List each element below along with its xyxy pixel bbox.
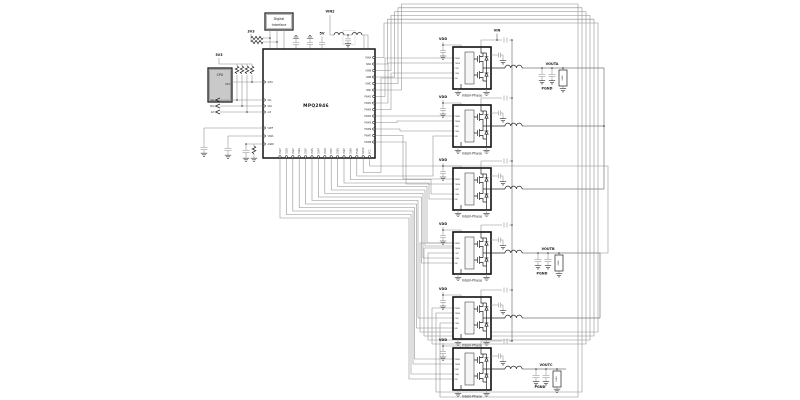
resistor-icon (252, 146, 256, 154)
load-b-label: LOAD (557, 260, 560, 266)
ic-pin-right-label: PWM6 (364, 128, 371, 131)
ic-pin-bottom (279, 156, 281, 158)
cpu-area: 3V3 CPU GPIO SCL SDA ALT (201, 53, 264, 161)
net-flag-label: ALT (211, 111, 215, 114)
ic-pin-bottom (305, 156, 307, 158)
ic-pin-left-label: SDA (268, 105, 273, 108)
ic-pin-right-label: PWM7 (364, 135, 371, 138)
ic-pin-right-label: PWM1 (364, 96, 371, 99)
ic-pin-right-label: ISNC (366, 89, 372, 92)
output-rail-c: VOUTC LOAD PGND (533, 363, 562, 393)
pullup-resistors (235, 66, 254, 74)
ic-pin-bottom-label: CS2N (298, 148, 301, 154)
output-rail-b: VOUTB LOAD PGND (535, 247, 564, 277)
ic-pin-left (263, 105, 265, 107)
ic-pin-right-label: ISNB (366, 76, 372, 79)
ic-pin-bottom (285, 156, 287, 158)
vouta-net-label: VOUTA (546, 62, 559, 66)
ic-pin-bottom-label: CS5N (337, 148, 340, 154)
vin-net-label: VIN (494, 29, 501, 33)
ic-pin-right (373, 141, 375, 143)
ic-pin-bottom (317, 156, 319, 158)
ic-pin-bottom-label: CS3N (311, 148, 314, 154)
ic-pin-bottom (349, 156, 351, 158)
3v3-net-label: 3V3 (247, 30, 255, 34)
ic-pin-bottom-label: VCC (369, 149, 372, 154)
input-area: 5V VIN2 (293, 10, 368, 50)
ic-pin-bottom-label: CS2P (292, 148, 295, 154)
digital-interface-line2: Interface (272, 23, 287, 27)
net-flag-label: SDA (210, 105, 215, 108)
ic-pin-left (263, 135, 265, 137)
schematic-canvas: VDD PWM TSNS CSP CSN EN (0, 0, 800, 400)
ic-pin-right-label: PWM2 (364, 102, 371, 105)
ic-pin-left (263, 111, 265, 113)
ic-pin-bottom (356, 156, 358, 158)
ic-pin-left (263, 81, 265, 83)
pgnd-net-label: PGND (535, 385, 546, 389)
ic-pin-right (373, 121, 375, 123)
ic-pin-bottom (369, 156, 371, 158)
ic-pin-bottom (292, 156, 294, 158)
ic-pin-right-label: PWM3 (364, 109, 371, 112)
schematic-svg: VDD PWM TSNS CSP CSN EN (0, 0, 800, 400)
pgnd-net-label: PGND (537, 272, 548, 276)
ic-pin-bottom-label: CS3P (305, 148, 308, 154)
ic-pin-right (373, 115, 375, 117)
ic-pin-right-label: VSNC (365, 83, 372, 86)
ic-pin-bottom-label: CS1N (285, 148, 288, 154)
cpu-pin-label: GPIO (225, 83, 231, 86)
ic-pin-left-label: AGND (268, 143, 275, 146)
digital-interface-line1: Digital (274, 17, 285, 21)
output-rails (522, 68, 604, 369)
ic-pin-right (373, 134, 375, 136)
digital-interface-block (265, 13, 293, 30)
ic-pin-bottom (298, 156, 300, 158)
ic-pin-left (263, 127, 265, 129)
ic-pin-bottom-label: CS6P (343, 148, 346, 154)
ic-pin-bottom-label: CS5P (330, 148, 333, 154)
ic-pin-right-label: ISNA (366, 63, 372, 66)
vin2-net-label: VIN2 (325, 10, 335, 14)
voutc-net-label: VOUTC (539, 363, 553, 367)
ic-pin-bottom (362, 156, 364, 158)
cpu-label: CPU (217, 73, 224, 77)
phase-module-1 (439, 37, 522, 97)
phase-module-2 (439, 95, 522, 155)
ic-pin-bottom (330, 156, 332, 158)
ic-pin-bottom-label: AGND (362, 147, 365, 154)
5v-net-label: 5V (320, 32, 325, 36)
interface-pullups (251, 36, 263, 43)
phase-module-3 (439, 158, 522, 218)
ic-pin-right-label: PWM4 (364, 115, 371, 118)
phase-module-4 (439, 222, 522, 282)
digital-interface-area: Digital Interface 3V3 (247, 13, 293, 49)
ic-pin-bottom-label: CS1P (279, 148, 282, 154)
main-ic-part-label: MPQ2946 (303, 103, 329, 109)
ic-pin-left-label: VREF (268, 127, 274, 130)
ic-pin-bottom-label: CS4P (317, 148, 320, 154)
ic-pin-bottom-label: TSNS (356, 148, 359, 154)
ic-pin-right (373, 95, 375, 97)
pgnd-net-label: PGND (542, 87, 553, 91)
ic-pin-right (373, 89, 375, 91)
vin-bus (497, 34, 512, 342)
ic-pin-left-label: GPIO (268, 81, 274, 84)
ic-pin-right (373, 69, 375, 71)
phase-module-5 (439, 287, 522, 347)
ic-pin-left (263, 99, 265, 101)
ic-pin-right (373, 82, 375, 84)
ic-pin-left (263, 143, 265, 145)
ic-pin-right-label: PWM8 (364, 141, 371, 144)
ic-pin-right-label: VSNB (365, 70, 372, 73)
output-rail-a: VOUTA LOAD PGND (539, 62, 568, 92)
ic-pin-right (373, 128, 375, 130)
ic-pin-left-label: VSNS (268, 135, 275, 138)
ic-pin-right (373, 108, 375, 110)
load-c-label: LOAD (555, 376, 558, 382)
ic-pin-right (373, 76, 375, 78)
ic-pin-bottom-label: CS6N (349, 148, 352, 154)
3v3-net-label: 3V3 (215, 53, 223, 57)
ic-pin-bottom (337, 156, 339, 158)
ic-pin-bottom-label: CS4N (324, 148, 327, 154)
ic-pin-bottom (311, 156, 313, 158)
ic-pin-bottom (343, 156, 345, 158)
ic-pin-right (373, 63, 375, 65)
ic-pin-bottom (324, 156, 326, 158)
voutb-net-label: VOUTB (541, 247, 555, 251)
ic-pin-right-label: PWM5 (364, 122, 371, 125)
ic-pin-right (373, 102, 375, 104)
phase-module-6 (439, 338, 522, 398)
ic-pin-right (373, 56, 375, 58)
ic-pin-right-label: VSNA (365, 57, 372, 60)
load-a-label: LOAD (561, 75, 564, 81)
